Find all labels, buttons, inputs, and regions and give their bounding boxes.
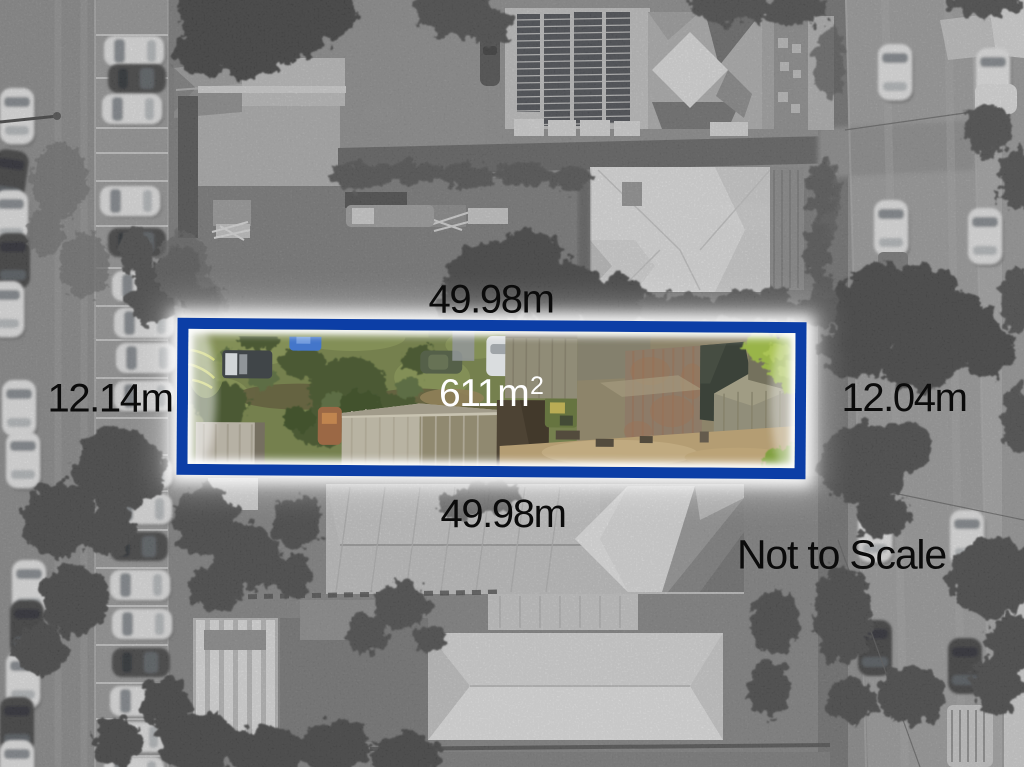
svg-text:2: 2 [530, 372, 544, 400]
svg-text:49.98m: 49.98m [428, 278, 553, 322]
svg-text:49.98m: 49.98m [440, 492, 565, 536]
svg-text:12.14m: 12.14m [47, 377, 172, 421]
svg-text:Not to Scale: Not to Scale [737, 532, 946, 578]
svg-text:611m: 611m [439, 372, 528, 415]
svg-text:12.04m: 12.04m [841, 376, 966, 420]
